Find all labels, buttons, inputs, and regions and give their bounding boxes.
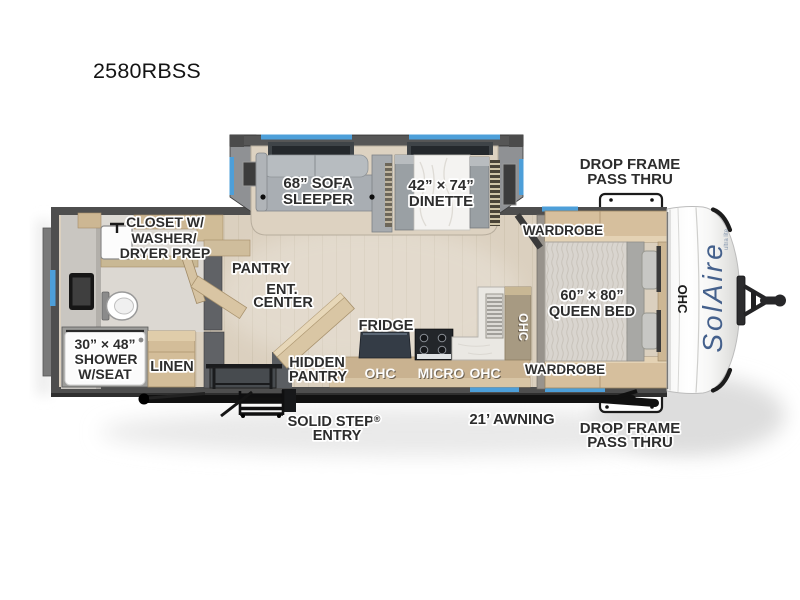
svg-text:W/SEAT: W/SEAT [78, 366, 132, 382]
svg-text:OHC: OHC [364, 365, 395, 381]
svg-text:OHC: OHC [469, 365, 500, 381]
svg-text:21’ AWNING: 21’ AWNING [469, 411, 554, 428]
svg-text:SLEEPER: SLEEPER [283, 191, 353, 208]
svg-text:PASS THRU: PASS THRU [587, 434, 673, 451]
svg-text:68” SOFA: 68” SOFA [283, 175, 352, 192]
svg-text:2580RBSS: 2580RBSS [93, 59, 201, 83]
svg-text:MICRO: MICRO [418, 365, 465, 381]
svg-text:WARDROBE: WARDROBE [525, 362, 605, 377]
svg-text:PASS THRU: PASS THRU [587, 171, 673, 188]
svg-text:PANTRY: PANTRY [232, 261, 290, 277]
svg-text:CLOSET W/: CLOSET W/ [126, 214, 204, 230]
svg-text:FRIDGE: FRIDGE [359, 318, 414, 334]
svg-text:ENTRY: ENTRY [313, 428, 362, 444]
svg-text:60” × 80”: 60” × 80” [560, 288, 623, 304]
svg-text:OHC: OHC [675, 285, 690, 315]
svg-text:QUEEN BED: QUEEN BED [549, 304, 635, 320]
svg-text:LINEN: LINEN [150, 359, 194, 375]
svg-text:ultra lite: ultra lite [724, 228, 730, 250]
svg-text:DINETTE: DINETTE [409, 193, 473, 210]
svg-text:WARDROBE: WARDROBE [523, 223, 603, 238]
svg-text:SolAire: SolAire [697, 241, 728, 352]
svg-text:DRYER PREP: DRYER PREP [120, 245, 211, 261]
svg-text:42” × 74”: 42” × 74” [408, 177, 473, 194]
svg-text:OHC: OHC [516, 313, 530, 341]
svg-text:30” × 48”: 30” × 48” [74, 336, 135, 352]
svg-text:SHOWER: SHOWER [75, 351, 138, 367]
svg-text:WASHER/: WASHER/ [131, 230, 196, 246]
svg-text:CENTER: CENTER [253, 295, 313, 311]
svg-text:PANTRY: PANTRY [289, 369, 347, 385]
